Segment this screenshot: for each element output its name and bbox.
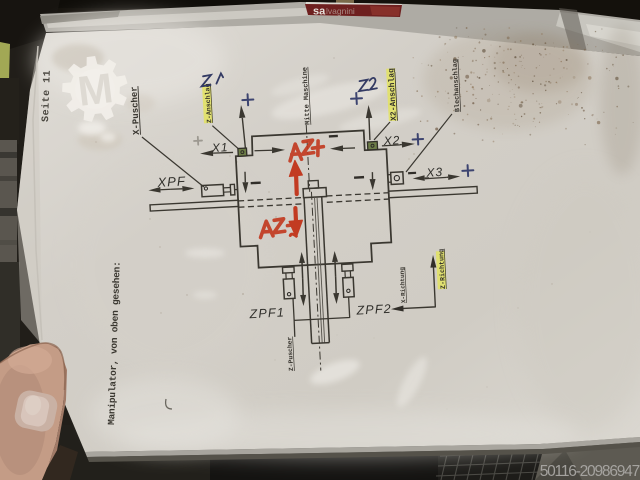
svg-text:M: M xyxy=(75,64,115,115)
svg-text:ZPF2: ZPF2 xyxy=(355,302,392,318)
svg-text:sa: sa xyxy=(313,6,326,18)
svg-text:XPF: XPF xyxy=(156,173,186,190)
svg-text:lvagnini: lvagnini xyxy=(326,6,355,16)
svg-text:Seite 11: Seite 11 xyxy=(40,70,54,122)
svg-text:50116-20986947: 50116-20986947 xyxy=(540,463,640,480)
svg-text:ZPF1: ZPF1 xyxy=(248,305,285,321)
svg-text:X1: X1 xyxy=(210,140,228,155)
